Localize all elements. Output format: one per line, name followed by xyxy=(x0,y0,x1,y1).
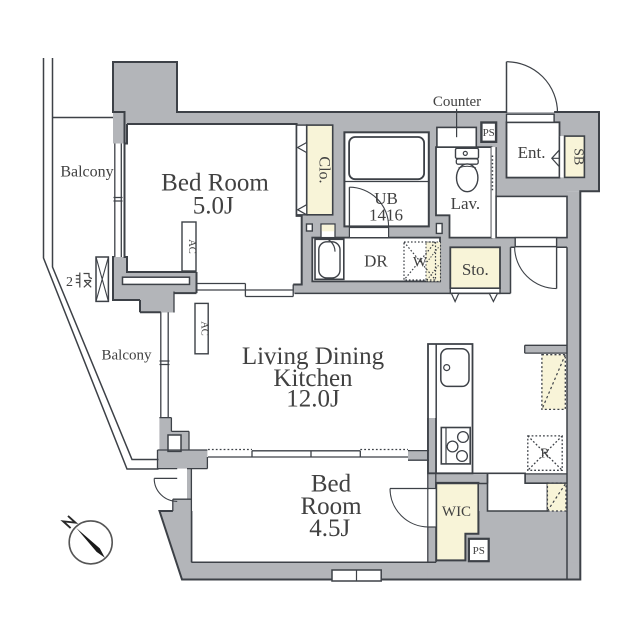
svg-text:DR: DR xyxy=(364,252,388,271)
svg-text:AC: AC xyxy=(186,239,197,254)
svg-text:Balcony: Balcony xyxy=(60,164,113,181)
svg-text:2: 2 xyxy=(66,275,73,290)
svg-text:SB: SB xyxy=(571,148,586,165)
svg-text:PS: PS xyxy=(473,545,485,557)
svg-text:PS: PS xyxy=(483,127,495,139)
svg-text:1416: 1416 xyxy=(369,206,403,225)
svg-text:Balcony: Balcony xyxy=(102,348,152,364)
svg-text:4.5J: 4.5J xyxy=(309,515,350,542)
svg-text:12.0J: 12.0J xyxy=(286,386,340,413)
svg-text:Clo.: Clo. xyxy=(316,156,333,183)
svg-text:Counter: Counter xyxy=(433,94,481,110)
svg-text:WIC: WIC xyxy=(442,504,471,520)
svg-text:5.0J: 5.0J xyxy=(193,193,234,220)
svg-text:AC: AC xyxy=(199,321,210,336)
svg-text:Lav.: Lav. xyxy=(451,194,481,213)
svg-text:W: W xyxy=(413,255,428,271)
svg-text:Ent.: Ent. xyxy=(518,143,546,162)
svg-text:Sto.: Sto. xyxy=(462,260,489,279)
svg-text:R: R xyxy=(540,446,549,461)
